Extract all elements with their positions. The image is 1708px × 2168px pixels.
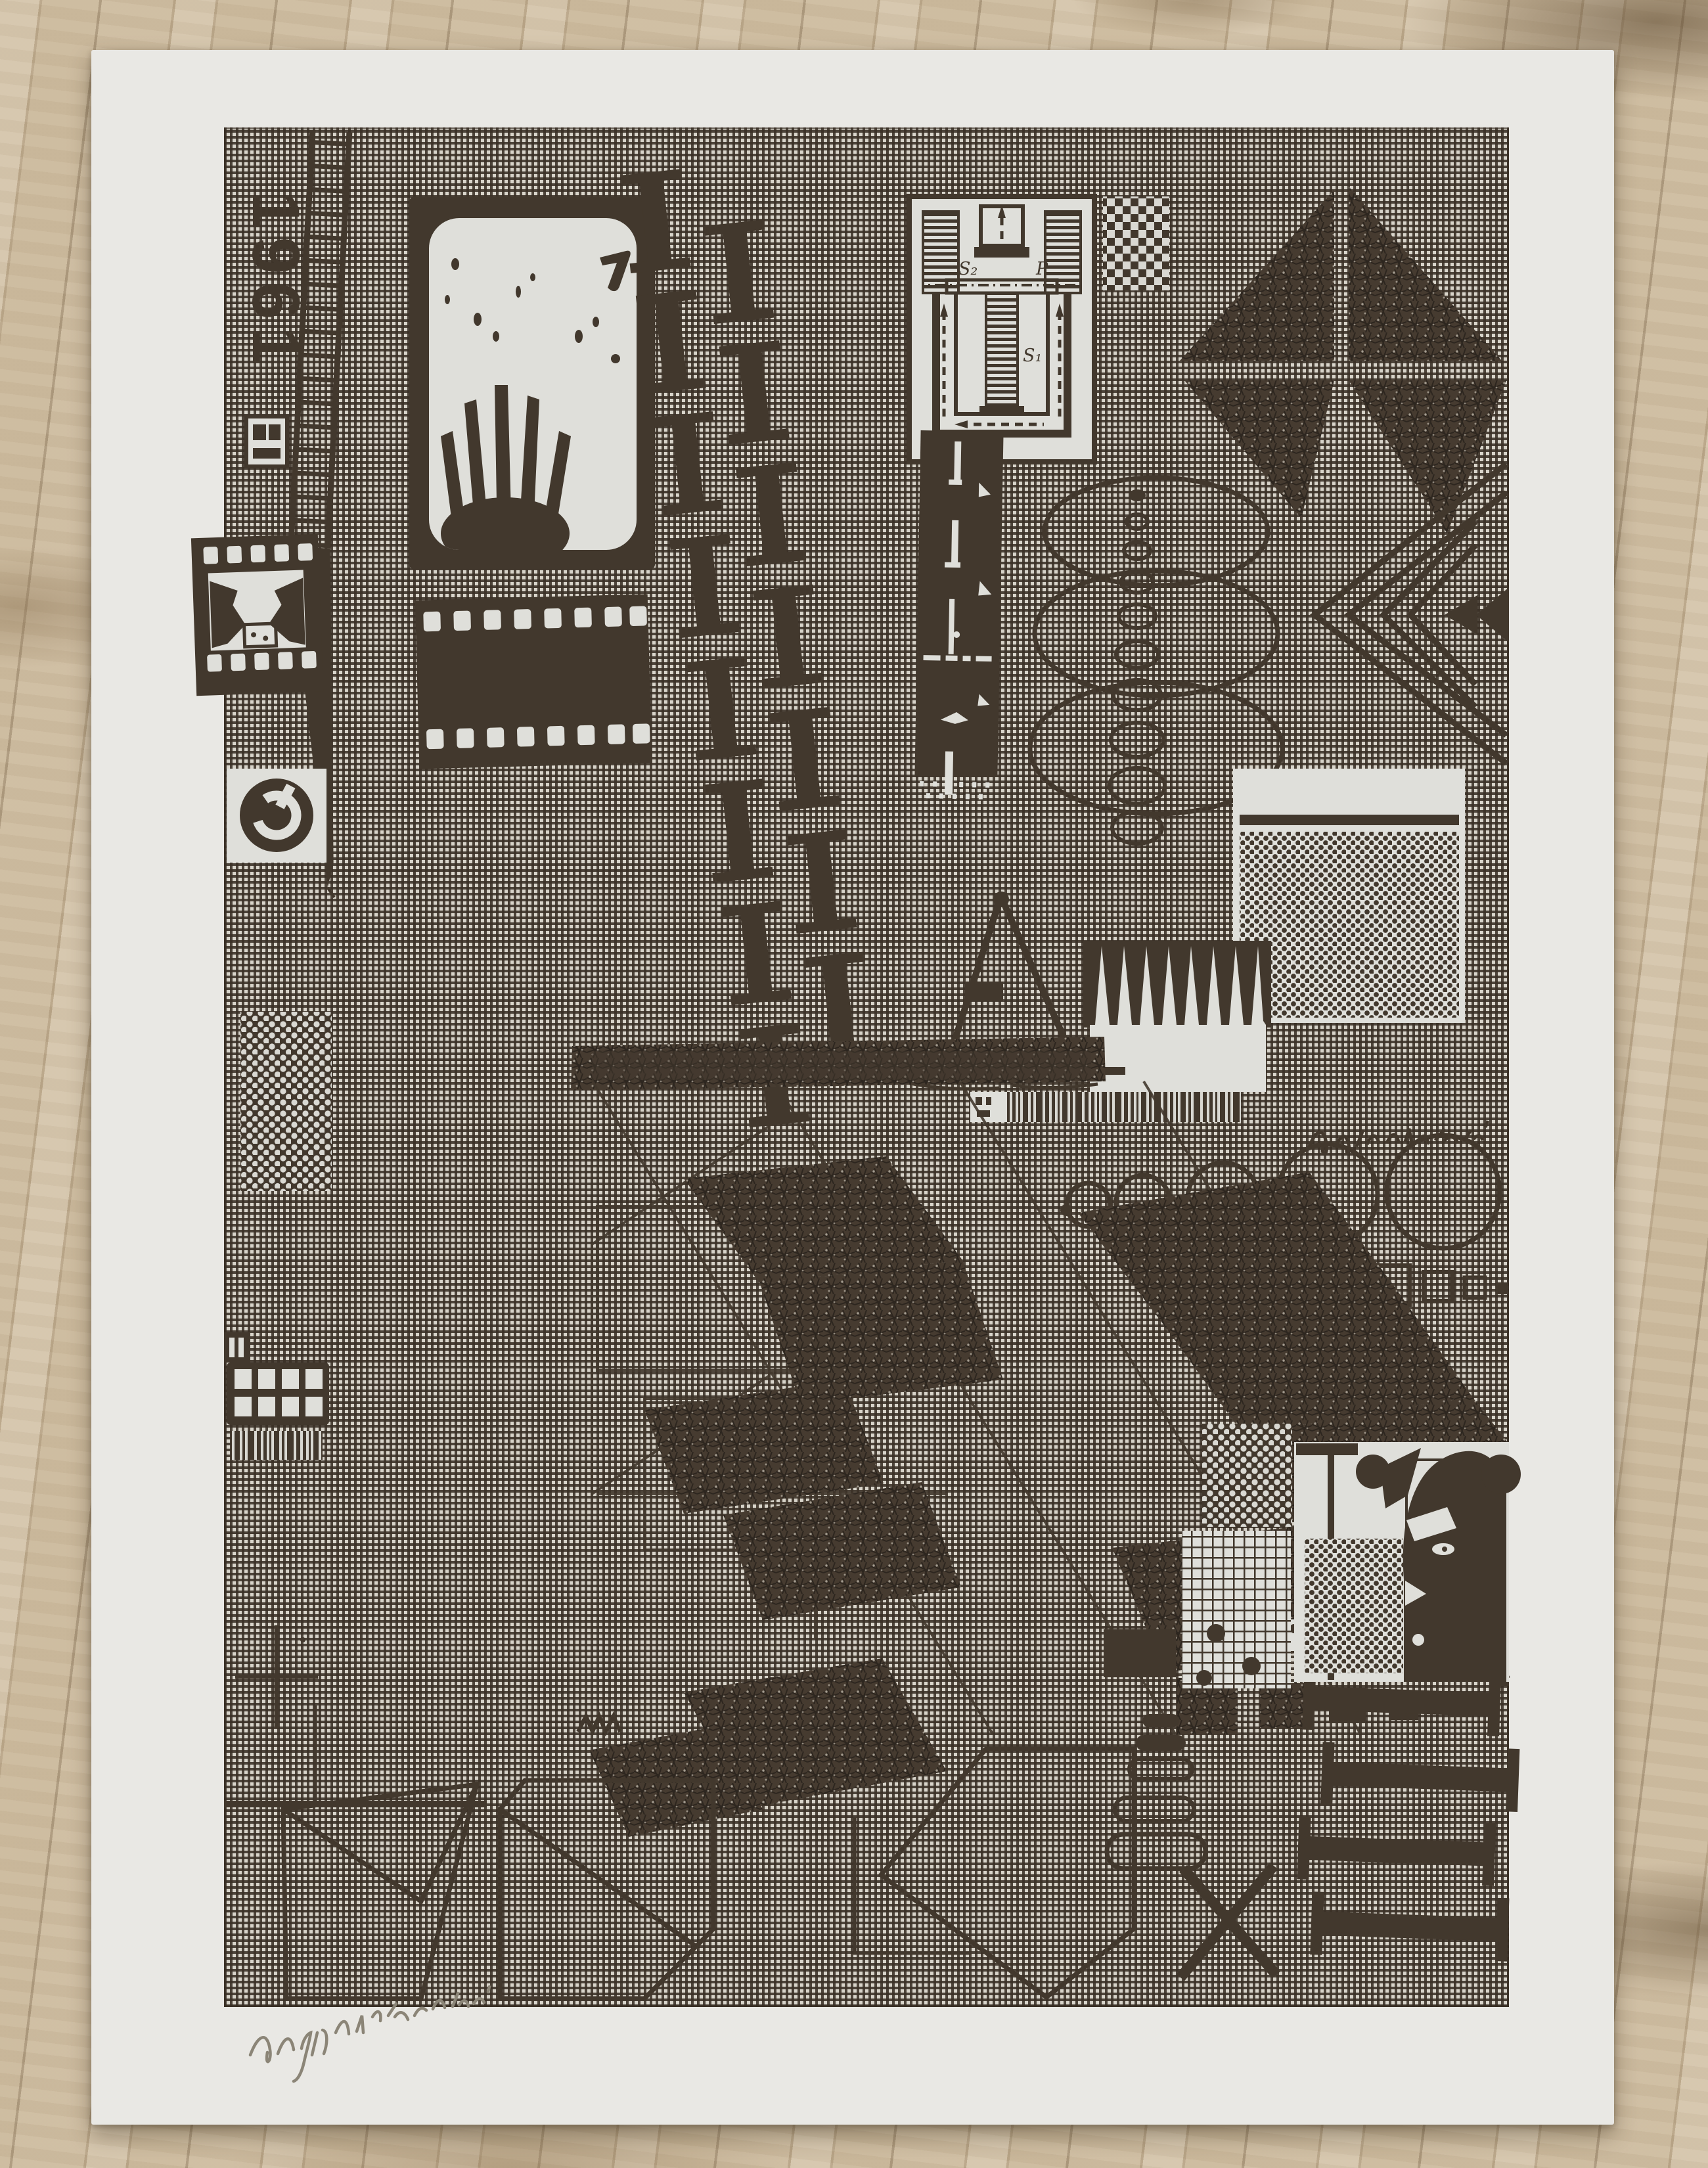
pencil-signature bbox=[242, 2008, 551, 2093]
photo-scene: 1961 bbox=[0, 0, 1708, 2168]
crosshatch-cubes-left bbox=[589, 1156, 1003, 1837]
dot-panel bbox=[1202, 1424, 1292, 1527]
mm-scribble bbox=[578, 1716, 620, 1732]
triangle-pinwheel bbox=[1180, 187, 1506, 533]
patent-diagram: S₂ P S₁ bbox=[909, 196, 1094, 462]
plus-mark bbox=[235, 1625, 318, 1728]
svg-text:S₂: S₂ bbox=[958, 259, 978, 279]
power-icon bbox=[227, 769, 326, 863]
grid-icon bbox=[227, 1363, 329, 1460]
svg-text:P: P bbox=[1035, 259, 1048, 279]
tv-screen-panel bbox=[409, 196, 655, 570]
screenprint-area: 1961 bbox=[224, 127, 1509, 2007]
ibeam-row bbox=[1294, 1667, 1522, 1962]
halftone-square-left bbox=[240, 1012, 332, 1191]
checkerboard bbox=[1103, 196, 1169, 290]
barcode-strip bbox=[970, 1092, 1241, 1122]
collage-artwork: 1961 bbox=[224, 127, 1509, 2007]
pill-stack bbox=[1107, 1714, 1205, 1868]
road-strip bbox=[914, 430, 1004, 800]
film-strip bbox=[415, 594, 652, 769]
tiny-tag-icon bbox=[224, 1332, 250, 1363]
portrait-panel bbox=[1294, 1442, 1521, 1682]
scribble-band bbox=[571, 1037, 1106, 1091]
paper-sheet: 1961 bbox=[91, 50, 1614, 2125]
film-frame bbox=[191, 534, 323, 696]
road-dots bbox=[920, 781, 989, 800]
ibeam-column bbox=[620, 158, 880, 1130]
chevron-arrows bbox=[1315, 464, 1509, 763]
solid-square bbox=[1104, 1629, 1176, 1677]
grid-blob-panel bbox=[1182, 1531, 1291, 1688]
x-mark bbox=[1180, 1866, 1276, 1977]
svg-text:S₁: S₁ bbox=[1023, 346, 1042, 366]
pentagon-outline bbox=[855, 1749, 1134, 1997]
